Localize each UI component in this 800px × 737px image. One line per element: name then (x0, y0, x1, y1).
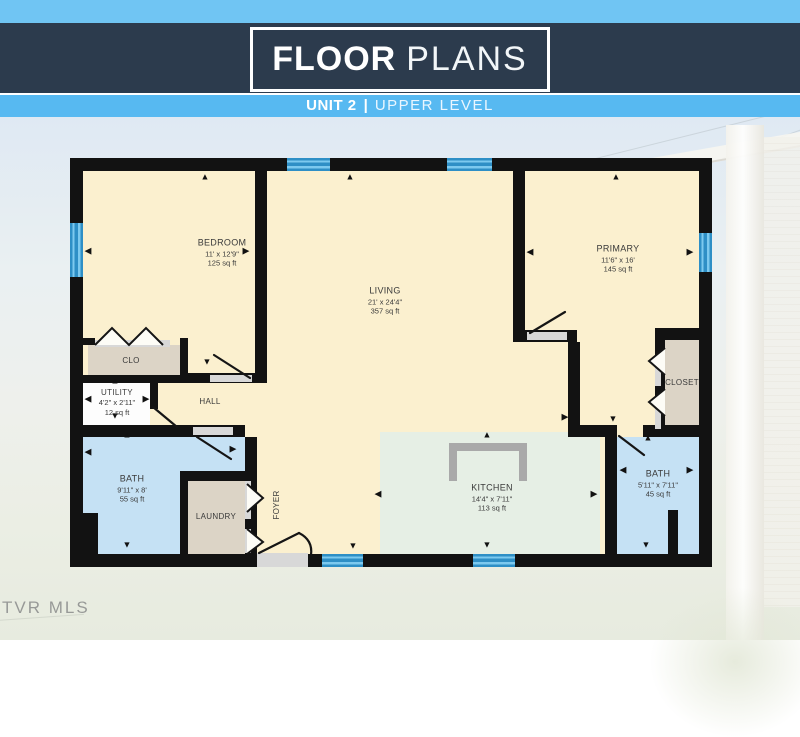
room-label-primary: PRIMARY 11'6" x 16' 145 sq ft (597, 243, 640, 274)
room-label-foyer: FOYER (272, 490, 282, 519)
camera-arrow-right-icon: ▶ (591, 490, 598, 499)
subtitle-divider: | (364, 95, 368, 117)
camera-arrow-left-icon: ◀ (620, 466, 627, 475)
page-title-light: PLANS (406, 40, 528, 79)
room-label-closet: CLOSET (665, 378, 699, 388)
room-label-kitchen: KITCHEN 14'4" x 7'11" 113 sq ft (471, 482, 513, 513)
unit-label: UNIT 2 (306, 95, 357, 117)
bifold-door-symbols (95, 328, 665, 554)
camera-arrow-left-icon: ◀ (85, 395, 92, 404)
camera-arrow-down-icon: ▼ (609, 415, 618, 424)
house-siding (764, 137, 800, 607)
camera-arrow-up-icon: ▲ (612, 173, 621, 182)
camera-arrow-left-icon: ◀ (527, 248, 534, 257)
camera-arrow-right-icon: ▶ (143, 395, 150, 404)
camera-arrow-right-icon: ▶ (687, 466, 694, 475)
room-label-laundry: LAUNDRY (196, 512, 236, 522)
camera-arrow-right-icon: ▶ (562, 413, 569, 422)
camera-arrow-up-icon: ▲ (346, 173, 355, 182)
room-label-living: LIVING 21' x 24'4" 357 sq ft (368, 285, 402, 316)
room-label-clo: CLO (122, 356, 139, 366)
camera-arrow-down-icon: ▼ (642, 541, 651, 550)
camera-arrow-right-icon: ▶ (230, 445, 237, 454)
title-box: FLOOR PLANS (250, 27, 550, 92)
camera-arrow-up-icon: ▲ (111, 377, 120, 386)
room-label-hall: HALL (199, 397, 220, 407)
page-title-bold: FLOOR (272, 40, 396, 79)
level-label: UPPER LEVEL (375, 95, 494, 117)
floor-plan: ▲ ▲ ▲ ▲ ▲ ▲ ▲ ▼ ▼ ▼ ▼ ▼ ▼ ▼ ◀ ◀ ◀ ◀ ◀ ◀ … (70, 158, 712, 567)
camera-arrow-up-icon: ▲ (123, 431, 132, 440)
camera-arrow-left-icon: ◀ (375, 490, 382, 499)
room-label-bath-left: BATH 9'11" x 8' 55 sq ft (117, 473, 147, 504)
watermark: TVR MLS (2, 598, 90, 618)
camera-arrow-left-icon: ◀ (85, 247, 92, 256)
camera-arrow-down-icon: ▼ (203, 358, 212, 367)
camera-arrow-down-icon: ▼ (123, 541, 132, 550)
house-corner-post (726, 125, 764, 640)
room-label-utility: UTILITY 4'2" x 2'11" 12 sq ft (99, 388, 135, 418)
camera-arrow-left-icon: ◀ (85, 448, 92, 457)
camera-arrow-up-icon: ▲ (201, 173, 210, 182)
camera-arrow-right-icon: ▶ (687, 248, 694, 257)
door-symbols-overlay (70, 158, 712, 567)
camera-arrow-up-icon: ▲ (644, 434, 653, 443)
room-label-bedroom: BEDROOM 11' x 12'9" 125 sq ft (198, 237, 247, 268)
subtitle-ribbon: UNIT 2 | UPPER LEVEL (0, 95, 800, 117)
room-label-bath-right: BATH 5'11" x 7'11" 45 sq ft (638, 468, 678, 499)
sky-strip (0, 0, 800, 23)
camera-arrow-down-icon: ▼ (483, 541, 492, 550)
camera-arrow-down-icon: ▼ (349, 542, 358, 551)
tree-decor (650, 587, 800, 737)
camera-arrow-up-icon: ▲ (483, 431, 492, 440)
